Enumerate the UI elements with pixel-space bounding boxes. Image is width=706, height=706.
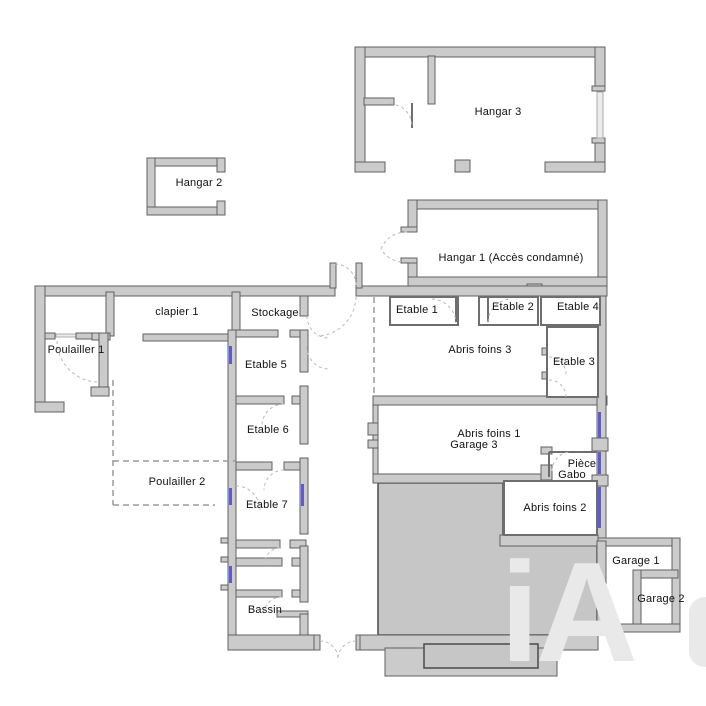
room-label-hangar2: Hangar 2 — [176, 177, 223, 189]
room-label-gabo: Gabo — [558, 469, 586, 481]
room-label-garage2: Garage 2 — [637, 593, 684, 605]
room-label-abris-foins2: Abris foins 2 — [523, 502, 586, 514]
room-label-hangar3: Hangar 3 — [475, 106, 522, 118]
room-label-garage1: Garage 1 — [612, 555, 659, 567]
room-label-etable5: Etable 5 — [245, 359, 287, 371]
room-label-poulailler2: Poulailler 2 — [149, 476, 206, 488]
room-label-hangar1: Hangar 1 (Accès condamné) — [438, 252, 583, 264]
room-label-bassin: Bassin — [248, 604, 282, 616]
room-label-clapier1: clapier 1 — [155, 306, 198, 318]
room-label-etable6: Etable 6 — [247, 424, 289, 436]
room-label-abris-foins3: Abris foins 3 — [448, 344, 511, 356]
room-label-stockage: Stockage — [251, 307, 298, 319]
room-label-etable1: Etable 1 — [396, 304, 438, 316]
floorplan-linework — [0, 0, 706, 706]
floorplan: iA Hangar 3 Hangar 2 Hangar 1 (Accès con… — [0, 0, 706, 706]
room-label-etable7: Etable 7 — [246, 499, 288, 511]
room-label-etable2: Etable 2 — [492, 301, 534, 313]
room-label-etable4: Etable 4 — [557, 301, 599, 313]
room-label-etable3: Etable 3 — [553, 356, 595, 368]
room-label-garage3: Garage 3 — [450, 439, 497, 451]
room-label-poulailler1: Poulailler 1 — [48, 344, 105, 356]
